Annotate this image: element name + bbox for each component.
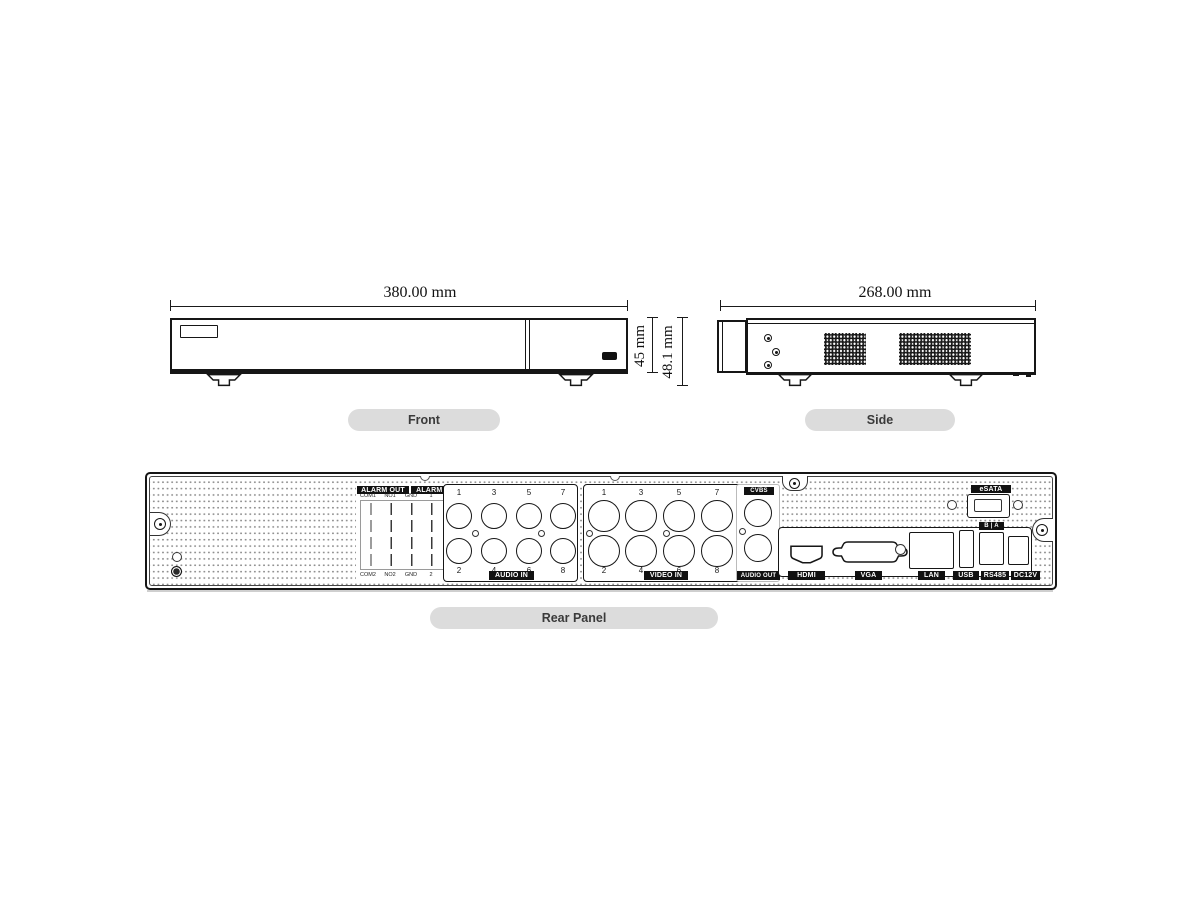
esata-label: eSATA: [971, 485, 1011, 493]
side-foot-left: [777, 373, 813, 387]
jack-number: 7: [555, 488, 571, 497]
panel-screw-hole: [739, 528, 746, 535]
front-height48-line: [682, 318, 683, 386]
audio-jack: [516, 503, 542, 529]
bezel-edge-line: [722, 322, 723, 371]
front-logo-badge: [180, 325, 218, 338]
front-caption: Front: [408, 413, 440, 427]
terminal-label: NO1: [379, 493, 401, 499]
lan-port: [909, 532, 954, 569]
video-bnc-jack: [588, 500, 620, 532]
terminal-label: NO2: [379, 572, 401, 578]
video-bnc-jack: [701, 500, 733, 532]
terminal-label: 2: [420, 572, 442, 578]
side-vent-grid-right: [899, 333, 971, 365]
front-width-dimension: 380.00 mm: [305, 284, 535, 302]
panel-screw-hole: [1013, 500, 1023, 510]
jack-number: 3: [633, 488, 649, 497]
jack-number: 8: [709, 566, 725, 575]
cvbs-label: CVBS: [744, 487, 774, 495]
jack-number: 2: [451, 566, 467, 575]
panel-screw-hole: [947, 500, 957, 510]
dimension-tick: [170, 300, 171, 311]
side-body: [746, 318, 1036, 375]
rs485-terminal-label: B | A: [979, 522, 1004, 530]
esata-port-slot: [974, 499, 1002, 512]
side-caption-pill: Side: [805, 409, 955, 431]
side-depth-dimension: 268.00 mm: [780, 284, 1010, 302]
panel-screw-hole: [895, 544, 906, 555]
audio-jack: [481, 538, 507, 564]
esata-port: [967, 494, 1010, 518]
front-foot-left: [206, 373, 242, 387]
lan-label: LAN: [918, 571, 945, 580]
terminal-label: GND: [400, 493, 422, 499]
panel-screw-hole: [586, 530, 593, 537]
video-bnc-jack: [625, 535, 657, 567]
dc12v-label: DC12V: [1011, 571, 1040, 580]
jack-number: 1: [451, 488, 467, 497]
video-in-block: 1 3 5 7 2 4 6 8 VIDEO IN: [583, 484, 755, 582]
side-screw-2: [772, 348, 780, 356]
dimension-tick: [647, 372, 658, 373]
jack-number: 5: [521, 488, 537, 497]
side-front-bezel: [717, 320, 747, 373]
cvbs-jack: [744, 499, 772, 527]
audio-jack: [446, 538, 472, 564]
ground-hole: [172, 552, 182, 562]
audio-jack: [481, 503, 507, 529]
panel-screw-hole: [472, 530, 479, 537]
audio-jack: [550, 538, 576, 564]
jack-number: 7: [709, 488, 725, 497]
left-screw: [154, 518, 166, 530]
jack-number: 1: [596, 488, 612, 497]
cvbs-audio-out-block: CVBS AUDIO OUT: [736, 484, 780, 582]
io-connector-block: B | A HDMI VGA LAN USB RS485 DC12V: [778, 527, 1032, 577]
video-in-label: VIDEO IN: [644, 571, 688, 580]
video-bnc-jack: [701, 535, 733, 567]
side-rear-bumper: [1026, 372, 1031, 377]
rs485-label: RS485: [981, 571, 1009, 580]
audio-jack: [446, 503, 472, 529]
side-rear-bumper: [1013, 372, 1019, 376]
front-height45-line: [652, 318, 653, 373]
usb-label: USB: [953, 571, 979, 580]
vga-label: VGA: [855, 571, 882, 580]
dc12v-port: [1008, 536, 1029, 565]
front-body: [170, 318, 628, 374]
hdmi-port: [790, 545, 823, 565]
side-screw-3: [764, 361, 772, 369]
audio-out-jack: [744, 534, 772, 562]
front-usb-port: [602, 352, 617, 360]
dimension-tick: [677, 317, 688, 318]
video-bnc-jack: [663, 500, 695, 532]
front-total-height-dimension: 48.1 mm: [660, 321, 676, 383]
audio-out-label: AUDIO OUT: [737, 571, 780, 580]
usb-port: [959, 530, 974, 568]
front-foot-right: [558, 373, 594, 387]
terminal-label: 1: [420, 493, 442, 499]
rear-caption-pill: Rear Panel: [430, 607, 718, 629]
front-width-dimension-line: [170, 306, 628, 307]
side-foot-right: [948, 373, 984, 387]
rs485-port: [979, 532, 1004, 565]
ground-screw: [171, 566, 182, 577]
video-bnc-jack: [588, 535, 620, 567]
jack-number: 5: [671, 488, 687, 497]
jack-number: 3: [486, 488, 502, 497]
audio-jack: [516, 538, 542, 564]
terminal-label: GND: [400, 572, 422, 578]
front-body-height-dimension: 45 mm: [632, 316, 648, 376]
front-panel-divider: [525, 320, 530, 369]
side-screw-1: [764, 334, 772, 342]
hdmi-label: HDMI: [788, 571, 825, 580]
rear-caption: Rear Panel: [542, 611, 607, 625]
side-vent-grid-left: [824, 333, 866, 365]
dimension-tick: [627, 300, 628, 311]
side-depth-dimension-line: [720, 306, 1036, 307]
right-screw: [1036, 524, 1048, 536]
audio-jack: [550, 503, 576, 529]
panel-screw-hole: [538, 530, 545, 537]
top-screw: [789, 478, 800, 489]
panel-screw-hole: [663, 530, 670, 537]
jack-number: 2: [596, 566, 612, 575]
terminal-label: COM2: [357, 572, 379, 578]
dimension-tick: [1035, 300, 1036, 311]
video-bnc-jack: [625, 500, 657, 532]
video-bnc-jack: [663, 535, 695, 567]
rear-panel-shadow: [147, 590, 1053, 592]
audio-in-block: 1 3 5 7 2 4 6 8 AUDIO IN: [443, 484, 578, 582]
front-caption-pill: Front: [348, 409, 500, 431]
dvr-dimension-diagram: 380.00 mm 45 mm 48.1 mm Front 268.00 mm: [0, 0, 1200, 900]
dimension-tick: [720, 300, 721, 311]
dimension-tick: [647, 317, 658, 318]
dimension-tick: [677, 385, 688, 386]
jack-number: 8: [555, 566, 571, 575]
terminal-label: COM1: [357, 493, 379, 499]
side-top-seam-line: [748, 323, 1034, 324]
side-caption: Side: [867, 413, 893, 427]
audio-in-label: AUDIO IN: [489, 571, 534, 580]
